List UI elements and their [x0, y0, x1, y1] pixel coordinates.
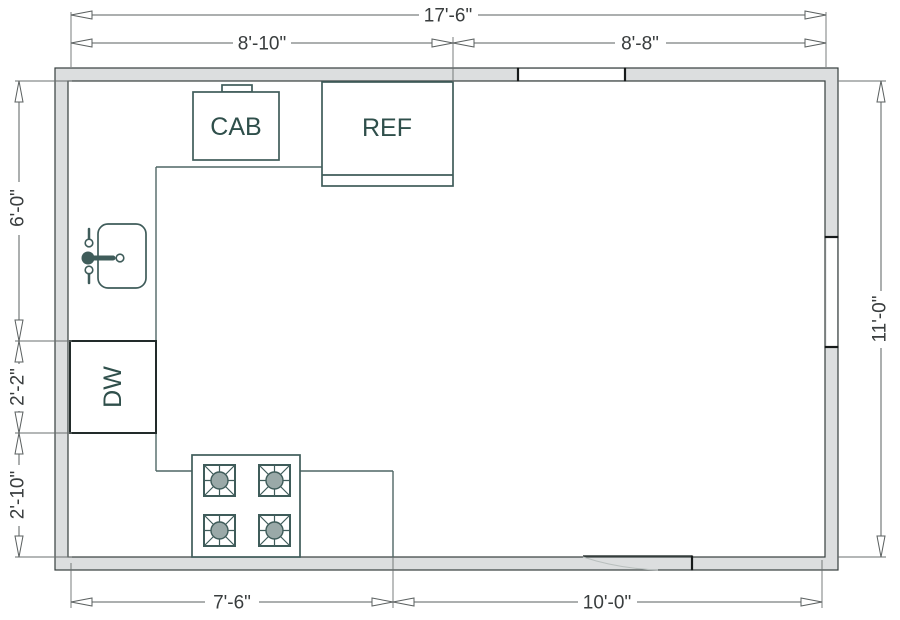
- floor-plan-canvas: CAB REF DW: [0, 0, 900, 620]
- sink: [82, 224, 147, 288]
- cabinet-label: CAB: [210, 113, 261, 141]
- burner-icon: [204, 515, 235, 546]
- faucet-handle-top: [85, 239, 93, 247]
- faucet-base: [82, 252, 95, 265]
- cabinet: CAB: [193, 85, 279, 160]
- dim-top-left: 8'-10": [238, 34, 286, 55]
- top-wall-window: [518, 68, 625, 82]
- burner-icon: [204, 465, 235, 496]
- dim-left-upper: 6'-0": [8, 189, 29, 227]
- stove: [192, 455, 300, 557]
- dim-left-lower: 2'-10": [8, 471, 29, 519]
- faucet-handle-bottom: [85, 266, 93, 274]
- dim-top-right: 8'-8": [621, 34, 659, 55]
- dishwasher-label: DW: [99, 366, 127, 408]
- dim-right-full: 11'-0": [870, 296, 891, 343]
- refrigerator: REF: [322, 82, 453, 186]
- refrigerator-label: REF: [362, 114, 412, 142]
- cabinet-handle: [222, 85, 252, 92]
- dishwasher: DW: [70, 341, 156, 433]
- dim-top-total: 17'-6": [424, 6, 472, 27]
- window-glass: [827, 238, 838, 346]
- dim-bottom-left: 7'-6": [213, 593, 251, 614]
- burner-icon: [259, 515, 290, 546]
- faucet-outlet: [116, 254, 124, 262]
- burner-icon: [259, 465, 290, 496]
- dim-left-middle: 2'-2": [8, 368, 29, 406]
- window-glass: [518, 69, 625, 80]
- right-wall-window: [825, 237, 839, 347]
- floor-plan: CAB REF DW: [0, 0, 900, 620]
- dim-bottom-right: 10'-0": [583, 593, 631, 614]
